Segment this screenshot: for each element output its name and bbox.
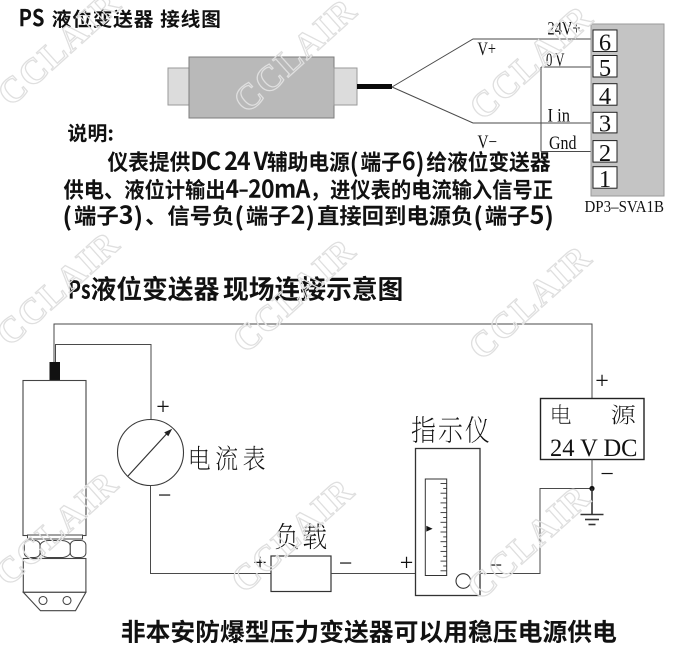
svg-text:1: 1: [599, 166, 611, 193]
svg-text:I in: I in: [548, 106, 571, 127]
svg-text:+: +: [156, 395, 170, 421]
svg-text:−: −: [600, 462, 614, 488]
svg-text:24 V DC: 24 V DC: [550, 433, 638, 462]
svg-text:+: +: [400, 550, 414, 576]
svg-text:6: 6: [599, 29, 611, 56]
svg-text:4: 4: [599, 83, 611, 110]
svg-text:5: 5: [599, 55, 611, 82]
svg-text:Gnd: Gnd: [549, 133, 577, 154]
svg-text:2: 2: [599, 140, 611, 167]
svg-text:V+: V+: [478, 39, 497, 60]
svg-text:−: −: [339, 551, 353, 577]
svg-text:DP3–SVA1B: DP3–SVA1B: [585, 197, 665, 216]
svg-text:−: −: [158, 483, 172, 509]
svg-text:V−: V−: [478, 132, 498, 153]
svg-text:+: +: [595, 369, 609, 395]
svg-text:3: 3: [599, 111, 611, 138]
